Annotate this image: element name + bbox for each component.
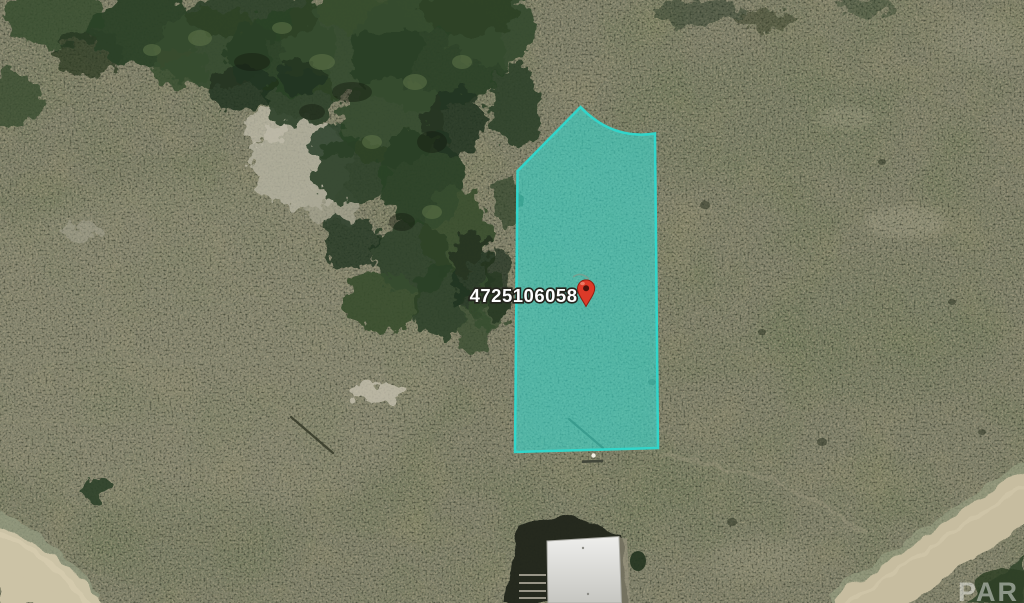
building-roof bbox=[547, 537, 622, 603]
parcel-id-label: 4725106058 bbox=[470, 285, 578, 306]
satellite-map-view[interactable]: 4725106058 PAR bbox=[0, 0, 1024, 603]
pin-highlight bbox=[580, 282, 585, 286]
watermark-text: PAR bbox=[958, 577, 1019, 603]
pin-hole bbox=[583, 285, 589, 291]
bush bbox=[630, 551, 646, 571]
satellite-canvas: 4725106058 PAR bbox=[0, 0, 1024, 603]
white-marker-dot bbox=[591, 453, 595, 457]
